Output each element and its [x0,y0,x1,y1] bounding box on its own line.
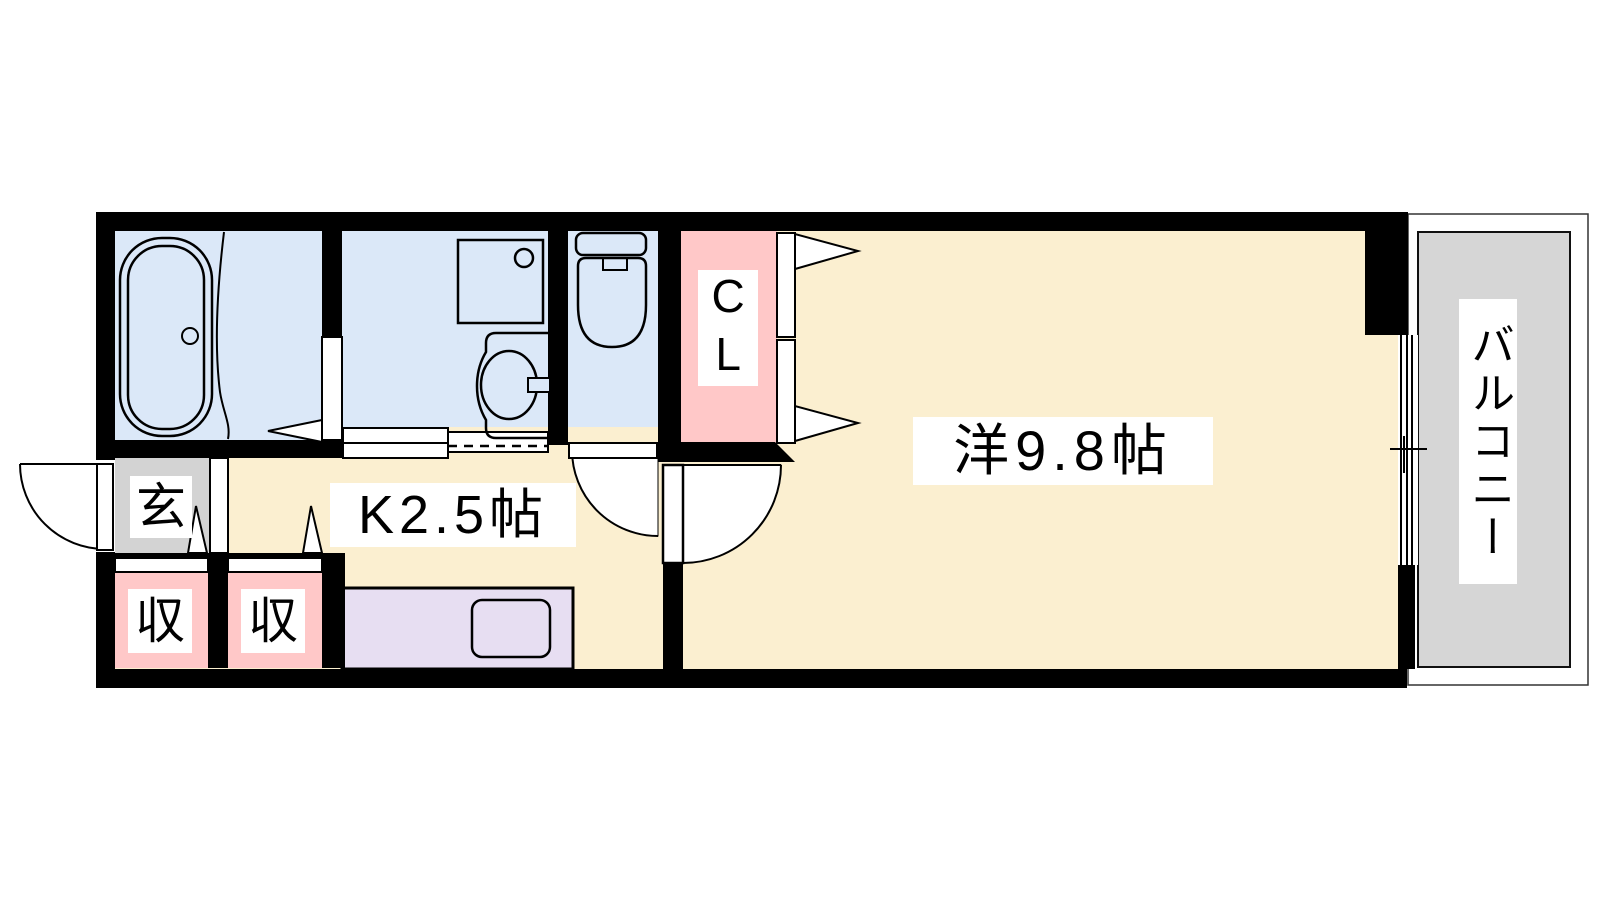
entrance-step [210,458,228,553]
label-storage-left: 収 [128,589,192,653]
wall-washroom-toilet [548,231,568,445]
wall-closet-bottom [658,442,795,462]
entrance-door-leaf [97,464,113,550]
label-closet: CL [698,270,758,386]
closet-door-leaf-bottom [777,340,795,443]
wall-toilet-closet [658,231,681,462]
room-door-leaf [663,465,683,563]
sliding-door-pocket [448,432,548,452]
floor-plan-canvas: 玄 収 収 K2.5帖 CL 洋9.8帖 バルコニー [0,0,1600,900]
washroom-area [342,231,548,427]
wall-storage-middle [208,553,228,668]
storage-right-door [228,558,322,572]
wall-left-lower [96,552,115,688]
wall-left-upper [96,212,115,460]
wall-bath-washroom [322,231,342,337]
wall-bathroom-bottom [96,440,348,458]
entrance-door-arc [20,464,105,549]
wall-storage-right [322,553,345,668]
wall-top [96,212,1408,231]
storage-left-door [115,558,208,572]
wall-right-lower [1398,565,1415,669]
wall-kitchen-room-divider [663,563,683,669]
wall-right-pillar [1365,212,1408,335]
label-kitchen: K2.5帖 [330,483,576,547]
label-entrance: 玄 [130,476,192,538]
bathroom-door-leaf [322,337,342,440]
vanity-tap [528,378,550,392]
floor-plan-drawing [0,0,1600,900]
label-western-room: 洋9.8帖 [913,417,1213,485]
label-storage-right: 収 [241,589,305,653]
entrance-door [20,464,113,550]
bathroom-area [115,231,322,440]
closet-door-leaf-top [777,233,795,337]
wall-bottom [96,669,1407,688]
label-balcony: バルコニー [1459,299,1517,584]
toilet-door-leaf [569,443,657,458]
